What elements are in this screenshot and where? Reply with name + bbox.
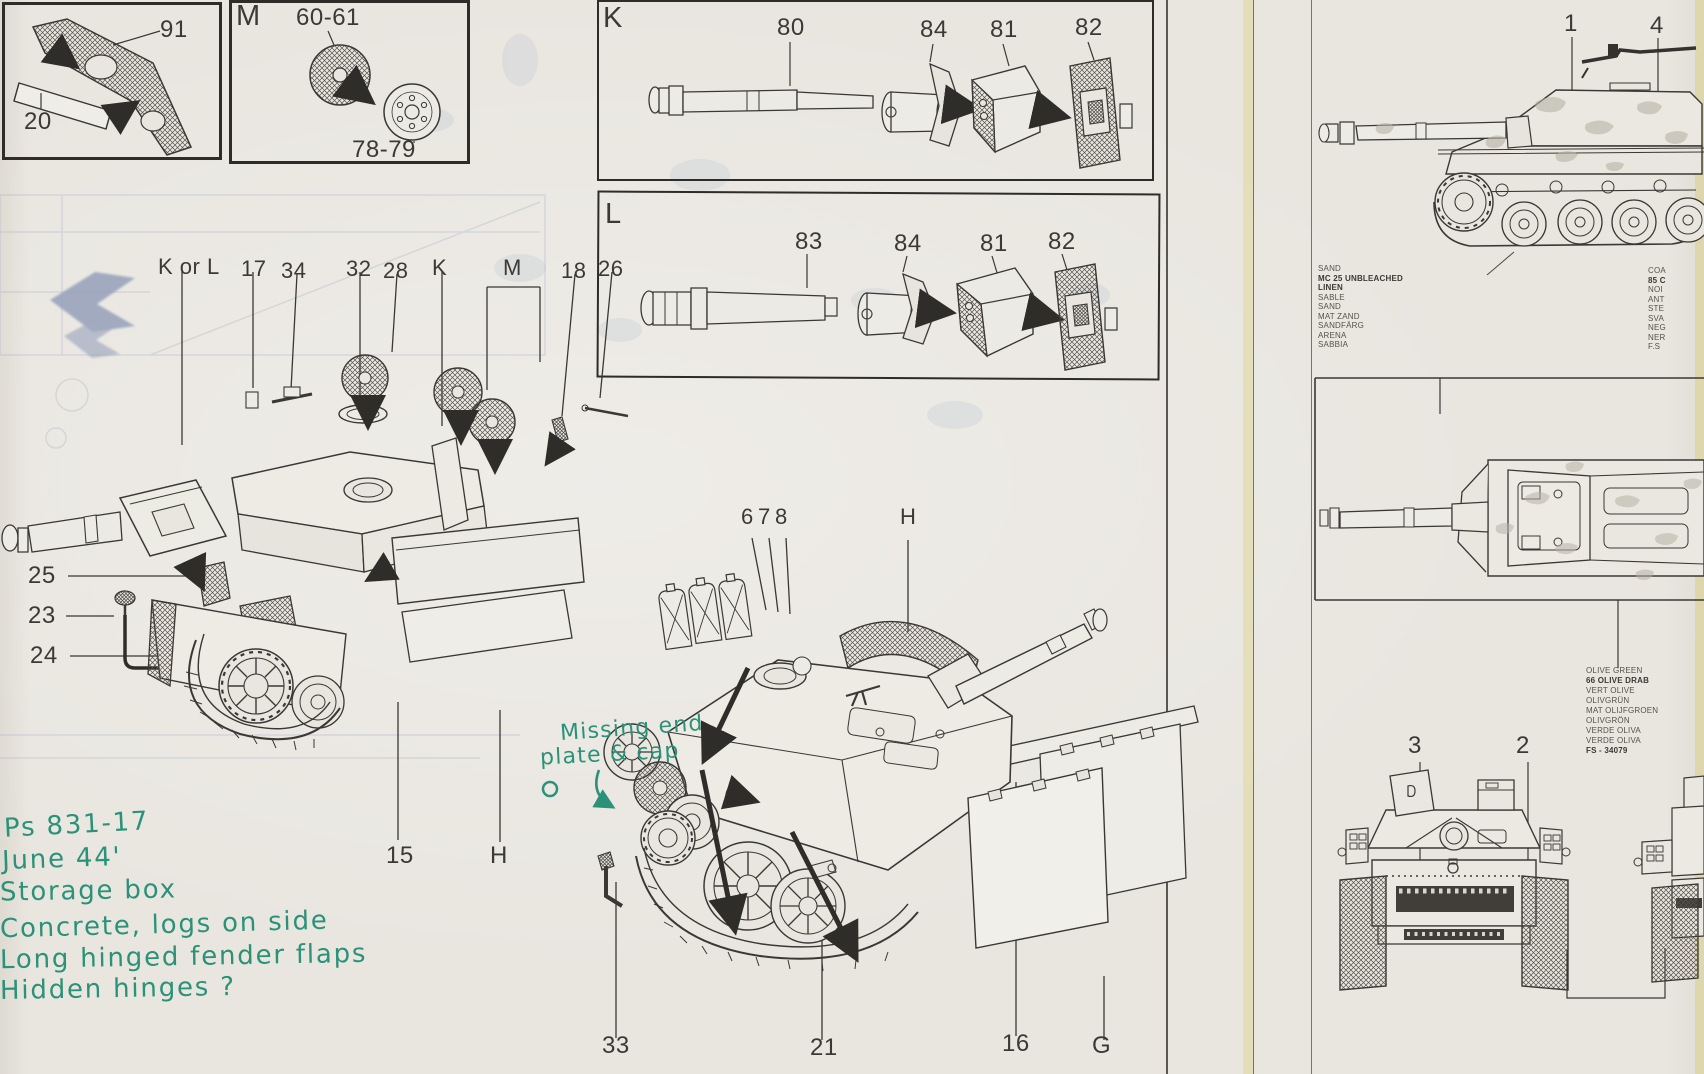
- part-label-60-61: 60-61: [296, 4, 360, 32]
- l-label-84: 84: [894, 230, 922, 258]
- upper-label-28: 28: [383, 258, 408, 284]
- upper-label-24: 24: [30, 642, 58, 670]
- lower-label-6: 6: [741, 504, 754, 530]
- lower-label-21: 21: [810, 1034, 838, 1062]
- color-line: VERT OLIVE: [1586, 686, 1658, 696]
- front-label-2: 2: [1516, 732, 1530, 760]
- upper-label-23: 23: [28, 602, 56, 630]
- color-line: OLIVE GREEN: [1586, 666, 1658, 676]
- inset-m-letter: M: [236, 0, 261, 33]
- k-label-84: 84: [920, 16, 948, 44]
- upper-label-34: 34: [281, 258, 306, 284]
- handwritten-note-3: Storage box: [0, 874, 177, 907]
- part-label-91: 91: [160, 16, 188, 44]
- upper-label-26: 26: [598, 256, 623, 282]
- upper-label-k: K: [432, 255, 447, 281]
- color-line: MAT OLIJFGROEN: [1586, 706, 1658, 716]
- l-label-83: 83: [795, 228, 823, 256]
- color-line: NER: [1648, 333, 1704, 343]
- upper-label-32: 32: [346, 256, 371, 282]
- color-line: SAND: [1318, 302, 1403, 312]
- gun-k-diagram: [597, 0, 1154, 181]
- olive-color-block: OLIVE GREEN 66 OLIVE DRAB VERT OLIVE OLI…: [1586, 666, 1658, 756]
- sand-color-block: SAND MC 25 UNBLEACHED LINEN SABLE SAND M…: [1318, 264, 1403, 350]
- handwritten-note-4: Concrete, logs on side: [0, 906, 329, 945]
- handwritten-note-6: Hidden hinges ?: [0, 972, 236, 1006]
- handwritten-note-2: June 44': [2, 842, 123, 876]
- color-line: SAND: [1318, 264, 1403, 274]
- lower-label-16: 16: [1002, 1030, 1030, 1058]
- color-line: OLIVGRÖN: [1586, 716, 1658, 726]
- box-k-letter: K: [603, 2, 623, 35]
- lower-assembly-diagram: [540, 470, 1204, 1074]
- handwritten-note-5: Long hinged fender flaps: [0, 939, 368, 975]
- lower-label-g: G: [1092, 1032, 1111, 1060]
- gun-l-diagram: [597, 192, 1160, 379]
- color-line: MAT ZAND: [1318, 312, 1403, 322]
- color-line: VERDE OLIVA: [1586, 736, 1658, 746]
- color-line: NEG: [1648, 323, 1704, 333]
- k-label-80: 80: [777, 14, 805, 42]
- color-line: COA: [1648, 266, 1704, 276]
- l-label-81: 81: [980, 230, 1008, 258]
- lower-label-8: 8: [775, 504, 788, 530]
- side-view-diagram: [1256, 6, 1704, 270]
- lower-label-33: 33: [602, 1032, 630, 1060]
- upper-label-k-or-l: K or L: [158, 254, 220, 280]
- color-line: VERDE OLIVA: [1586, 726, 1658, 736]
- box-l-letter: L: [605, 198, 622, 231]
- color-line: ANT: [1648, 295, 1704, 305]
- upper-label-18: 18: [561, 258, 586, 284]
- color-line: SVA: [1648, 314, 1704, 324]
- upper-label-m: M: [503, 255, 522, 281]
- color-line: SANDFÄRG: [1318, 321, 1403, 331]
- upper-label-25: 25: [28, 562, 56, 590]
- color-line: F.S: [1648, 342, 1704, 352]
- color-line: 66 OLIVE DRAB: [1586, 676, 1658, 686]
- upper-label-17: 17: [241, 256, 266, 282]
- part-label-20: 20: [24, 108, 52, 136]
- scanned-instruction-sheet: { "page": { "paper_color": "#e9e6e0", "i…: [0, 0, 1704, 1074]
- k-label-82: 82: [1075, 14, 1103, 42]
- color-line: STE: [1648, 304, 1704, 314]
- plan-view-diagram: [1256, 366, 1704, 672]
- upper-label-15: 15: [386, 842, 414, 870]
- side-label-4: 4: [1650, 12, 1664, 40]
- color-line: SABLE: [1318, 293, 1403, 303]
- k-label-81: 81: [990, 16, 1018, 44]
- part-label-78-79: 78-79: [352, 136, 416, 164]
- edge-color-block: COA 85 C NOI ANT STE SVA NEG NER F.S: [1648, 266, 1704, 352]
- upper-assembly-diagram: [0, 240, 630, 880]
- upper-label-h: H: [490, 842, 508, 870]
- color-line: 85 C: [1648, 276, 1704, 286]
- color-line: FS - 34079: [1586, 746, 1658, 756]
- color-line: SABBIA: [1318, 340, 1403, 350]
- lower-label-7: 7: [758, 504, 771, 530]
- side-label-1: 1: [1564, 10, 1578, 38]
- color-line: OLIVGRÜN: [1586, 696, 1658, 706]
- fold-line: [1253, 0, 1254, 1074]
- color-line: ARENA: [1318, 331, 1403, 341]
- color-line: LINEN: [1318, 283, 1403, 293]
- front-label-3: 3: [1408, 732, 1422, 760]
- lower-label-h: H: [900, 504, 916, 530]
- color-line: NOI: [1648, 285, 1704, 295]
- color-line: MC 25 UNBLEACHED: [1318, 274, 1403, 284]
- l-label-82: 82: [1048, 228, 1076, 256]
